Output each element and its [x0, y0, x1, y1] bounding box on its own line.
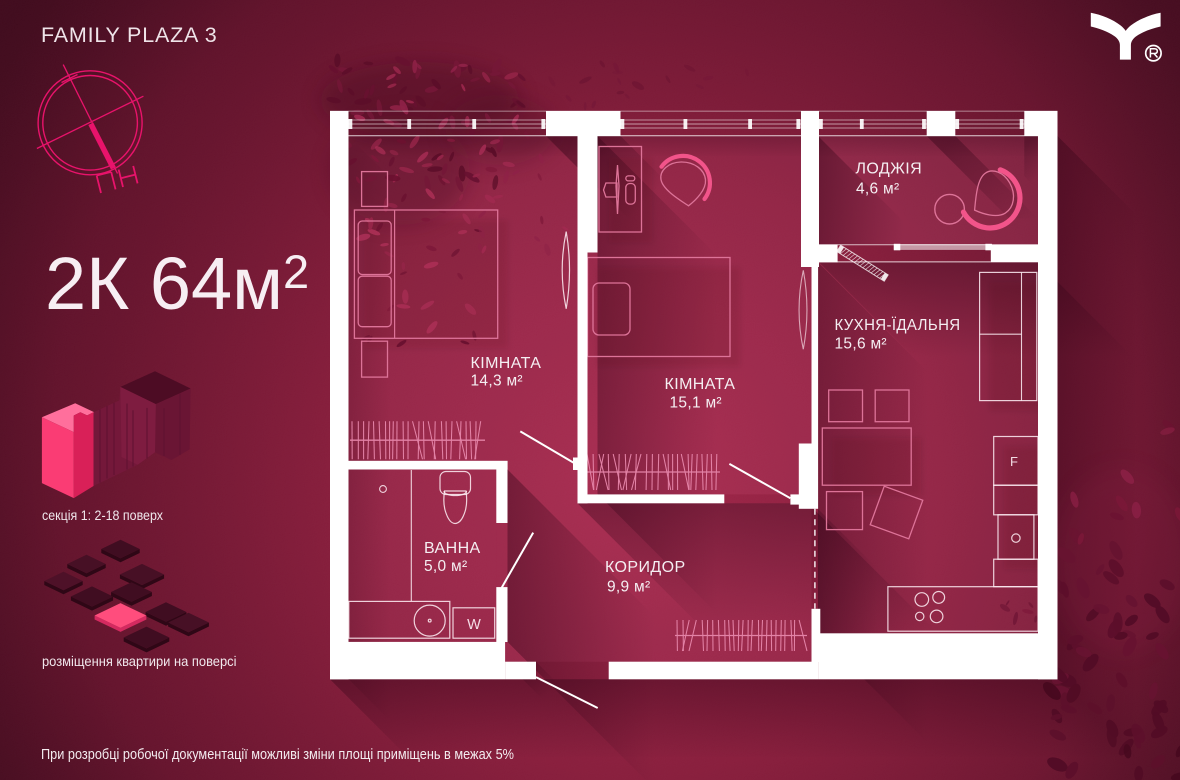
svg-text:5,0 м²: 5,0 м² — [424, 558, 467, 575]
svg-text:КІМНАТА: КІМНАТА — [471, 355, 542, 372]
svg-text:F: F — [1010, 454, 1018, 469]
svg-text:15,1 м²: 15,1 м² — [670, 395, 722, 412]
svg-text:ЛОДЖІЯ: ЛОДЖІЯ — [856, 161, 923, 178]
svg-text:При розробці робочої документа: При розробці робочої документації можлив… — [41, 747, 514, 763]
svg-text:КУХНЯ-ЇДАЛЬНЯ: КУХНЯ-ЇДАЛЬНЯ — [835, 316, 961, 334]
svg-text:2К 64м2: 2К 64м2 — [45, 242, 309, 325]
svg-text:розміщення квартири на поверсі: розміщення квартири на поверсі — [42, 653, 237, 669]
svg-text:14,3 м²: 14,3 м² — [471, 373, 523, 390]
svg-text:4,6 м²: 4,6 м² — [856, 181, 899, 198]
svg-text:КОРИДОР: КОРИДОР — [605, 559, 686, 576]
svg-text:FAMILY PLAZA 3: FAMILY PLAZA 3 — [41, 23, 218, 47]
svg-text:ВАННА: ВАННА — [424, 540, 481, 557]
svg-text:КІМНАТА: КІМНАТА — [665, 376, 736, 393]
svg-text:секція 1: 2-18 поверх: секція 1: 2-18 поверх — [42, 507, 163, 523]
svg-text:9,9 м²: 9,9 м² — [607, 579, 650, 596]
svg-text:15,6 м²: 15,6 м² — [835, 336, 887, 353]
svg-text:W: W — [467, 617, 481, 633]
